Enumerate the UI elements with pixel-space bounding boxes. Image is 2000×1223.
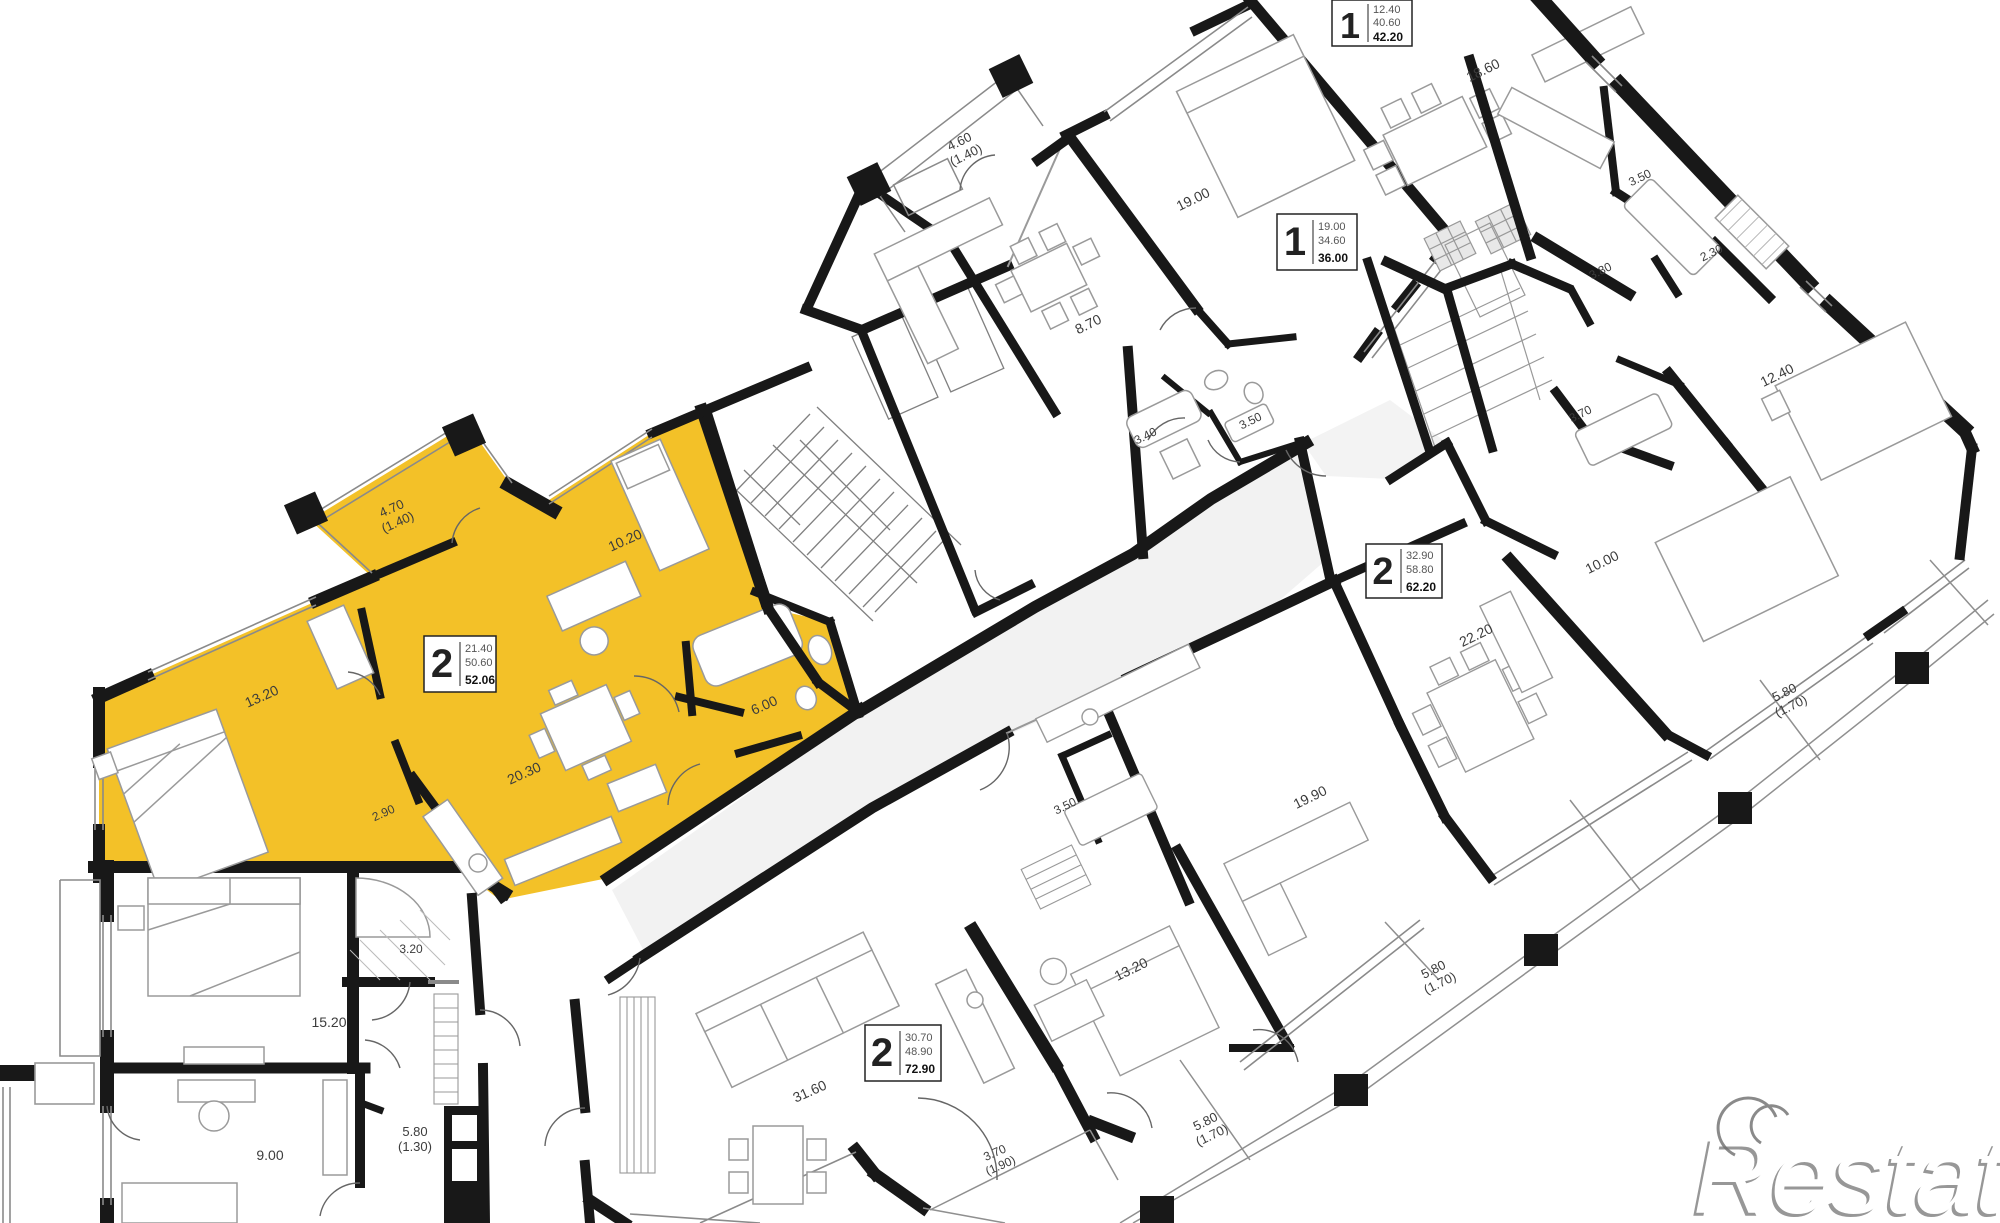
svg-text:30.70: 30.70: [905, 1032, 933, 1044]
svg-text:5.80: 5.80: [402, 1124, 427, 1139]
svg-text:50.60: 50.60: [465, 657, 493, 669]
svg-text:1: 1: [1284, 220, 1306, 264]
svg-text:58.80: 58.80: [1406, 564, 1434, 576]
svg-text:15.20: 15.20: [311, 1014, 346, 1030]
svg-text:40.60: 40.60: [1373, 17, 1401, 29]
svg-text:3.20: 3.20: [399, 942, 423, 956]
svg-text:2: 2: [1372, 551, 1393, 593]
svg-text:34.60: 34.60: [1318, 235, 1346, 247]
svg-text:2: 2: [431, 642, 453, 686]
svg-text:42.20: 42.20: [1373, 30, 1403, 44]
svg-text:36.00: 36.00: [1318, 251, 1348, 265]
svg-text:(1.30): (1.30): [398, 1139, 432, 1154]
svg-text:9.00: 9.00: [256, 1147, 283, 1163]
svg-text:48.90: 48.90: [905, 1046, 933, 1058]
svg-text:72.90: 72.90: [905, 1062, 935, 1076]
svg-text:21.40: 21.40: [465, 643, 493, 655]
svg-text:12.40: 12.40: [1373, 4, 1401, 16]
svg-text:52.06: 52.06: [465, 673, 495, 687]
svg-text:19.00: 19.00: [1318, 221, 1346, 233]
svg-text:Restate: Restate: [1693, 1115, 2000, 1223]
svg-text:32.90: 32.90: [1406, 550, 1434, 562]
svg-text:1: 1: [1340, 5, 1360, 46]
svg-text:62.20: 62.20: [1406, 580, 1436, 594]
svg-text:2: 2: [871, 1031, 893, 1075]
